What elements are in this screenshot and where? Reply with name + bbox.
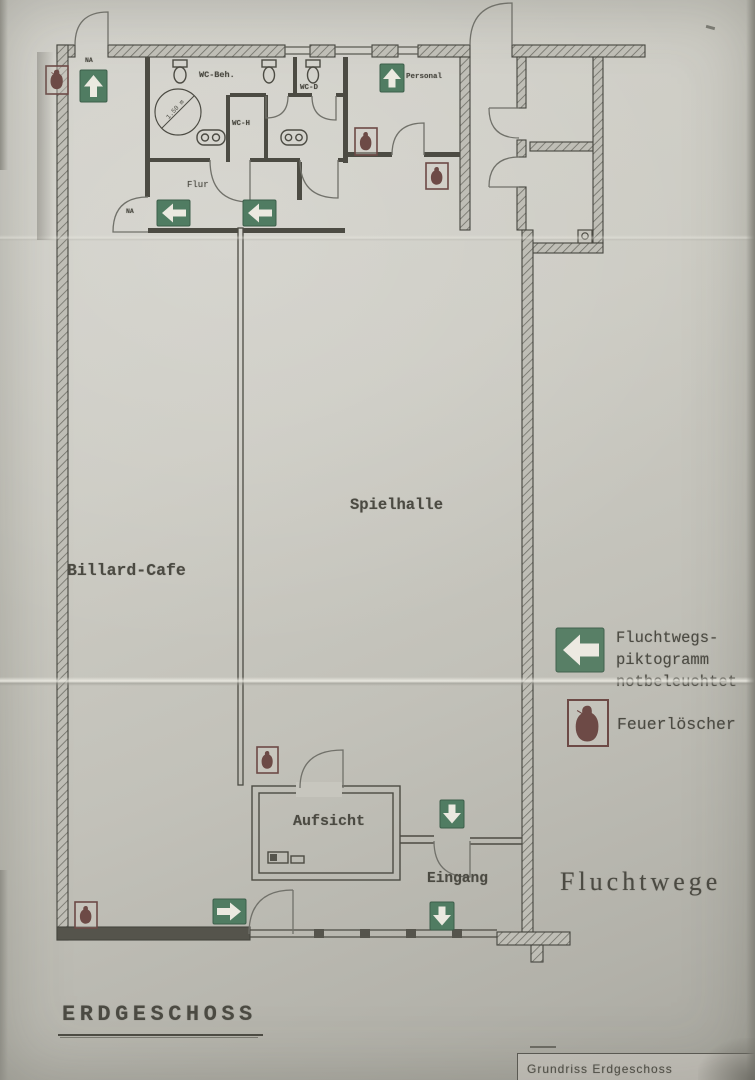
fire-extinguisher-icon bbox=[355, 128, 377, 155]
legend-escape-label-line1: Fluchtwegs- bbox=[616, 629, 718, 647]
room-label-billard-cafe: Billard-Cafe bbox=[67, 561, 186, 580]
room-label-flur: Flur bbox=[187, 180, 209, 190]
fire-extinguisher-icon bbox=[257, 747, 278, 773]
escape-arrow-right-icon bbox=[213, 899, 246, 924]
room-label-eingang: Eingang bbox=[427, 871, 488, 887]
toilet-icon bbox=[262, 60, 276, 83]
legend-escape-arrow-icon bbox=[556, 628, 604, 672]
caption-text: Grundriss Erdgeschoss bbox=[518, 1054, 755, 1076]
fire-extinguisher-icon bbox=[75, 902, 97, 928]
room-label-wc-h: WC-H bbox=[232, 120, 250, 128]
escape-arrow-up-icon bbox=[80, 70, 107, 102]
sink-icon bbox=[281, 130, 307, 145]
toilet-icon bbox=[306, 60, 320, 83]
legend-escape-label-line3: notbeleuchtet bbox=[616, 673, 737, 691]
room-label-na-top: NA bbox=[85, 57, 93, 64]
fire-extinguisher-icon bbox=[46, 66, 68, 94]
escape-arrow-up-icon bbox=[380, 64, 404, 92]
room-label-aufsicht: Aufsicht bbox=[293, 813, 365, 830]
toilet-icon bbox=[173, 60, 187, 83]
turning-circle bbox=[155, 89, 201, 135]
escape-arrow-down-icon bbox=[430, 902, 454, 930]
room-label-na-flur: NA bbox=[126, 208, 134, 215]
legend-fire-extinguisher-icon bbox=[568, 700, 608, 746]
plan-type-title: Fluchtwege bbox=[560, 867, 721, 897]
scanned-escape-plan-photo: 1.50 m bbox=[0, 0, 755, 1080]
aufsicht-booth bbox=[252, 782, 522, 880]
escape-arrow-left-icon bbox=[157, 200, 190, 226]
room-label-wc-d: WC-D bbox=[300, 84, 318, 92]
escape-arrow-down-icon bbox=[440, 800, 464, 828]
legend-escape-label-line2: piktogramm bbox=[616, 651, 709, 669]
turning-circle-dim: 1.50 m bbox=[165, 99, 186, 121]
storefront-glazing bbox=[250, 929, 497, 938]
column-detail bbox=[578, 230, 592, 243]
floor-plan-drawing: 1.50 m bbox=[0, 0, 755, 1080]
hall-dividing-wall bbox=[238, 228, 243, 785]
room-label-spielhalle: Spielhalle bbox=[350, 496, 443, 514]
escape-arrow-left-icon bbox=[243, 200, 276, 226]
floor-title: ERDGESCHOSS bbox=[62, 1002, 257, 1027]
sink-icon bbox=[197, 130, 225, 145]
fire-extinguisher-icon bbox=[426, 163, 448, 189]
legend-extinguisher-label: Feuerlöscher bbox=[617, 715, 736, 734]
caption-box: Grundriss Erdgeschoss bbox=[517, 1053, 755, 1080]
room-label-wc-beh: WC-Beh. bbox=[199, 70, 235, 80]
room-label-personal: Personal bbox=[406, 73, 442, 81]
